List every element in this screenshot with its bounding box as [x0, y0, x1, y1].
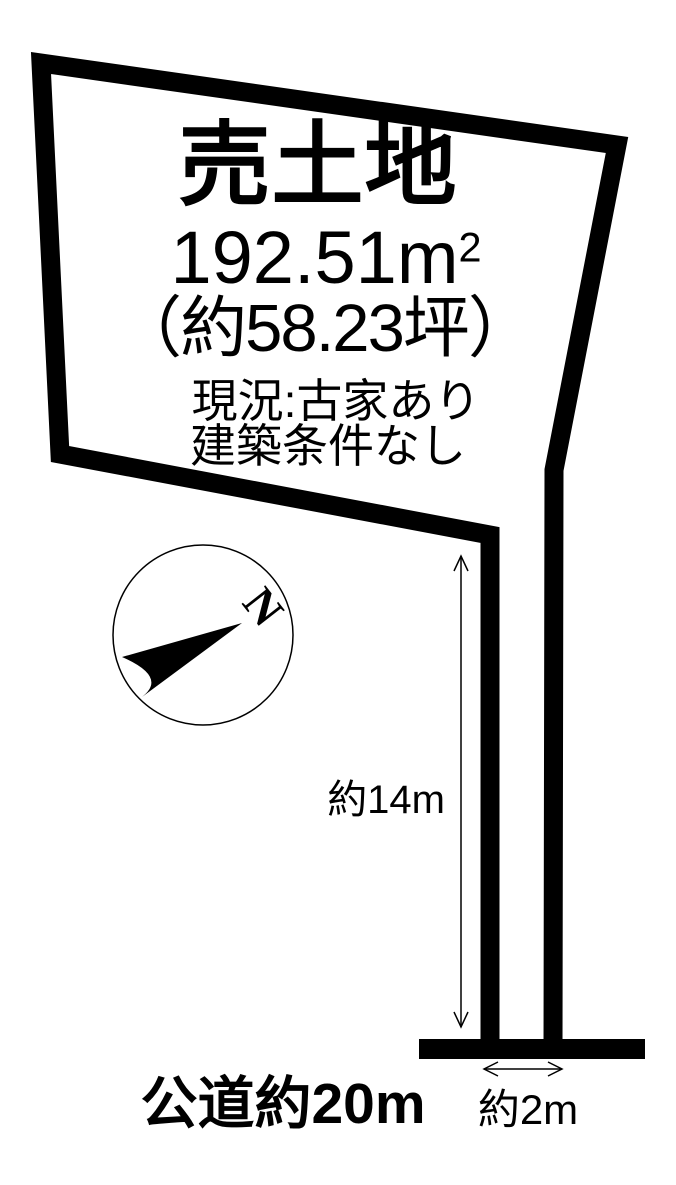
land-plot-diagram: 売土地 192.51m2 （約58.23坪） 現況:古家あり 建築条件なし N …: [0, 0, 676, 1185]
dimension-label-2m: 約2m: [478, 1089, 578, 1131]
road-label: 公道約20m: [140, 1076, 425, 1133]
compass-needle-icon: [122, 623, 242, 697]
dimension-arrow-14m: [454, 556, 468, 1027]
dimension-label-14m: 約14m: [327, 780, 445, 820]
area-unit-superscript: 2: [458, 223, 481, 270]
area-value: 192.51: [170, 216, 396, 299]
status-existing-house: 現況:古家あり: [192, 378, 481, 424]
area-unit: m: [397, 216, 459, 299]
road-bar: [419, 1039, 645, 1059]
dimension-arrow-2m: [484, 1062, 562, 1076]
land-title: 売土地: [178, 120, 457, 212]
area-square-meters: 192.51m2: [170, 221, 481, 295]
status-no-building-conditions: 建築条件なし: [190, 423, 466, 469]
area-tsubo: （約58.23坪）: [115, 295, 533, 362]
